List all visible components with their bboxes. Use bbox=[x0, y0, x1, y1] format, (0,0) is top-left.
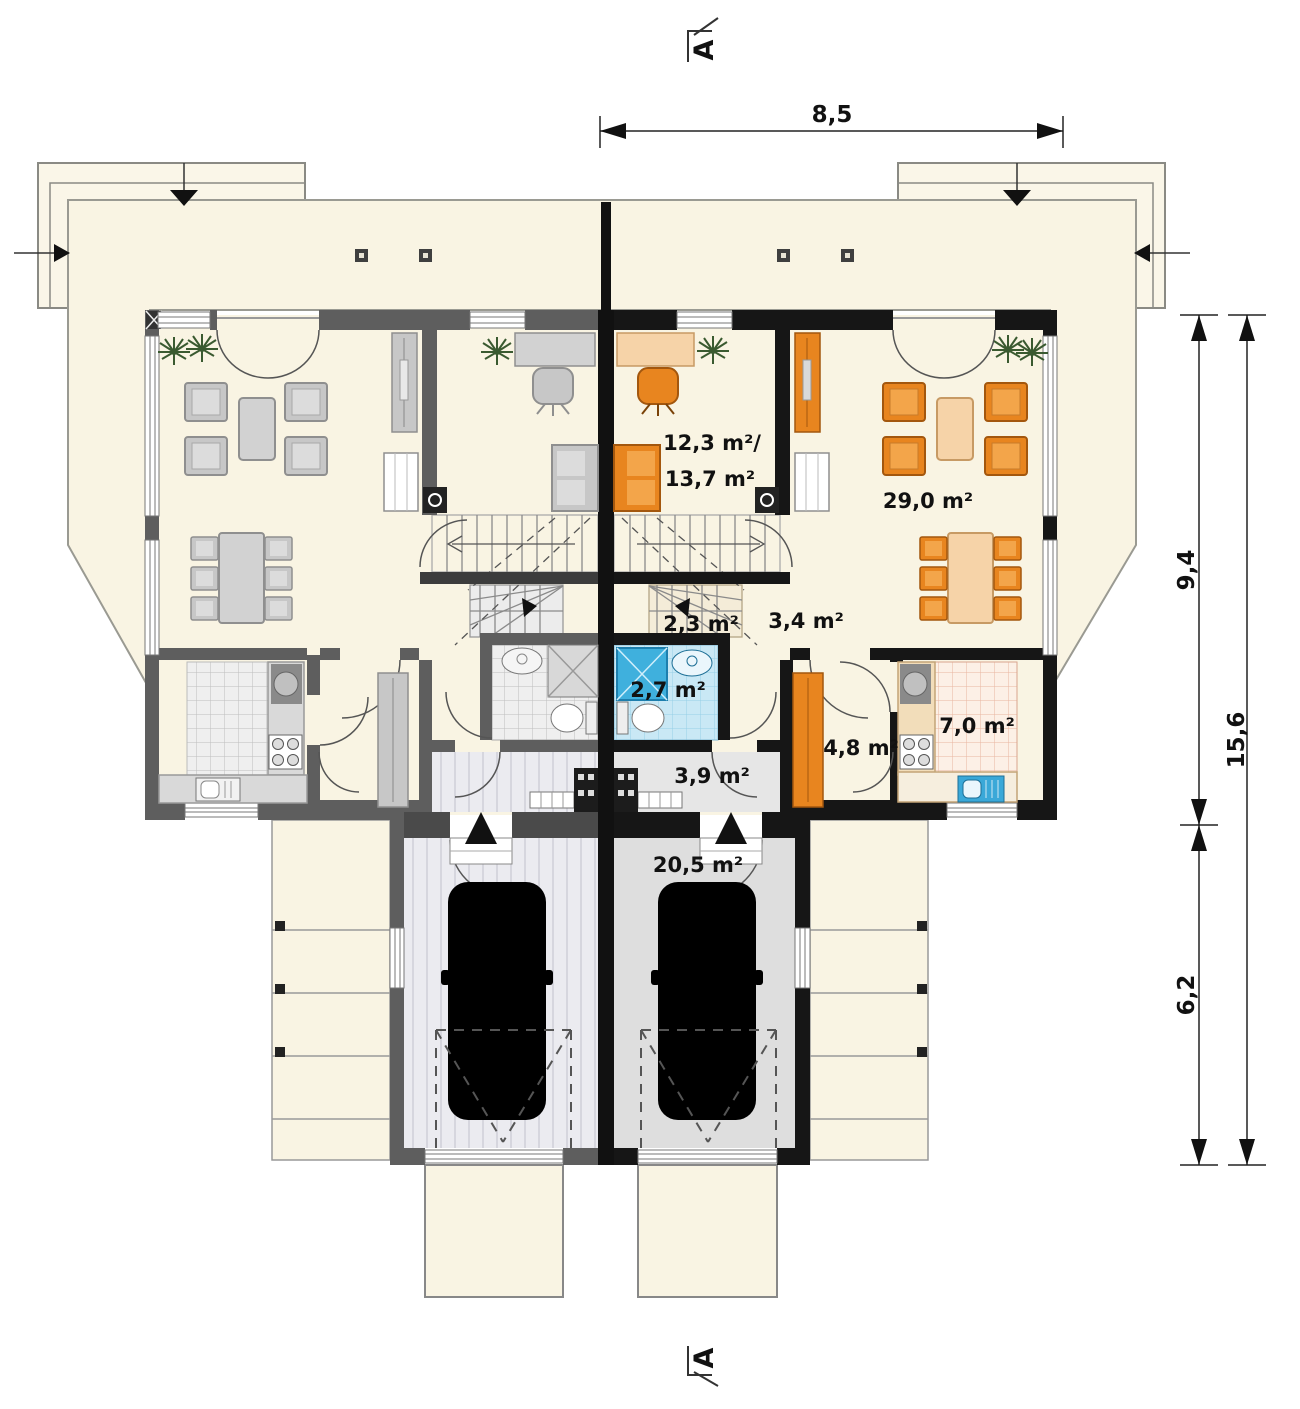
terrace-right bbox=[810, 820, 928, 1160]
label-vestibule-area: 3,9 m² bbox=[674, 764, 750, 788]
label-corridor-area: 3,4 m² bbox=[768, 609, 844, 633]
chimney-right bbox=[755, 487, 779, 513]
dim-width-top: 8,5 bbox=[812, 102, 853, 128]
section-letter-bottom: A bbox=[689, 1347, 720, 1368]
label-landing-area: 2,3 m² bbox=[663, 612, 739, 636]
section-letter-top: A bbox=[689, 39, 720, 60]
section-marker-bottom: A bbox=[688, 1346, 720, 1386]
shower-left bbox=[548, 645, 598, 697]
floor-plan-canvas: .gl .car-body{fill:#c6c6c6;stroke:#8e8e8… bbox=[0, 0, 1300, 1409]
terrace-left bbox=[272, 820, 390, 1160]
label-living-area: 29,0 m² bbox=[883, 489, 973, 513]
stove-left bbox=[269, 735, 302, 769]
dim-depth-total: 15,6 bbox=[1224, 712, 1250, 769]
driveway-right bbox=[638, 1165, 777, 1297]
fridge-left bbox=[271, 664, 302, 704]
label-office-area-2: 13,7 m² bbox=[665, 467, 755, 491]
sink-left bbox=[196, 778, 240, 801]
kitchen-tiles-left bbox=[187, 662, 268, 775]
stove-right bbox=[900, 735, 933, 769]
section-marker-top: A bbox=[688, 18, 720, 62]
basin-right bbox=[672, 650, 712, 676]
basin-left bbox=[502, 648, 542, 674]
dim-depth-main: 9,4 bbox=[1174, 550, 1200, 591]
entrance-left bbox=[450, 812, 512, 864]
dimension-right bbox=[1180, 315, 1266, 1165]
flue-left bbox=[574, 768, 598, 812]
car-gray: .gl .car-body{fill:#c6c6c6;stroke:#8e8e8… bbox=[441, 882, 553, 1120]
sink-right bbox=[958, 776, 1004, 802]
radiator-right bbox=[638, 792, 682, 808]
dim-depth-garage: 6,2 bbox=[1174, 975, 1200, 1016]
floor-plan-page: .gl .car-body{fill:#c6c6c6;stroke:#8e8e8… bbox=[0, 0, 1300, 1409]
label-hall-area: 4,8 m² bbox=[823, 736, 899, 760]
fridge-right bbox=[900, 664, 931, 704]
chimney-left bbox=[423, 487, 447, 513]
radiator-left bbox=[530, 792, 574, 808]
label-kitchen-area: 7,0 m² bbox=[939, 714, 1015, 738]
label-bathroom-area: 2,7 m² bbox=[630, 678, 706, 702]
car-green bbox=[651, 882, 763, 1120]
flue-right bbox=[614, 768, 638, 812]
driveway-left bbox=[425, 1165, 563, 1297]
label-garage-area: 20,5 m² bbox=[653, 853, 743, 877]
party-wall bbox=[601, 202, 611, 312]
toilet-right bbox=[617, 702, 664, 734]
label-office-area-1: 12,3 m²/ bbox=[663, 431, 761, 455]
toilet-left bbox=[551, 702, 597, 734]
party-wall-main bbox=[598, 310, 614, 1165]
